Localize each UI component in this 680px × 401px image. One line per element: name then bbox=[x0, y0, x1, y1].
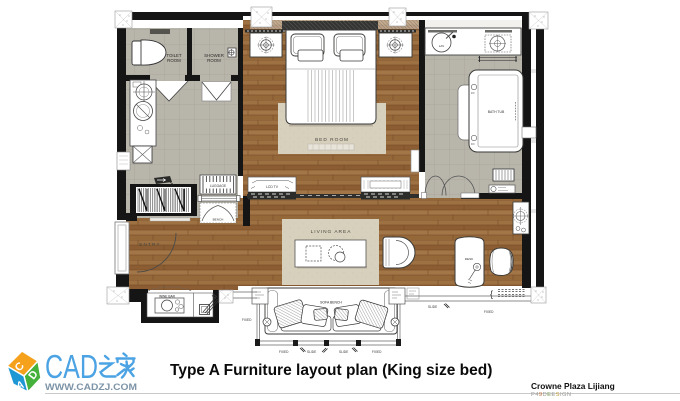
svg-text:WWW.CADZJ.COM: WWW.CADZJ.COM bbox=[45, 382, 137, 393]
svg-text:SOFA BENCH: SOFA BENCH bbox=[320, 301, 342, 305]
svg-text:FIXED: FIXED bbox=[279, 350, 289, 354]
svg-text:FD: FD bbox=[471, 142, 475, 146]
svg-text:P49DEESIGN: P49DEESIGN bbox=[531, 392, 571, 398]
svg-text:Crowne Plaza Lijiang: Crowne Plaza Lijiang bbox=[531, 381, 615, 391]
svg-text:CAD: CAD bbox=[45, 348, 98, 385]
svg-text:LCD TV: LCD TV bbox=[266, 185, 279, 189]
svg-text:SLIDE: SLIDE bbox=[339, 350, 348, 354]
svg-text:ROOM: ROOM bbox=[167, 58, 181, 63]
svg-text:SLIDE: SLIDE bbox=[428, 305, 437, 309]
svg-text:LAV: LAV bbox=[439, 44, 444, 48]
svg-text:ROOM: ROOM bbox=[207, 58, 221, 63]
svg-text:DESK: DESK bbox=[465, 257, 474, 261]
svg-text:ENTRY: ENTRY bbox=[139, 242, 161, 247]
svg-text:LUGGAGE: LUGGAGE bbox=[210, 184, 227, 188]
svg-text:{: { bbox=[490, 289, 493, 299]
svg-text:Type A Furniture layout plan (: Type A Furniture layout plan (King size … bbox=[170, 362, 492, 379]
svg-text:FIXED: FIXED bbox=[372, 350, 382, 354]
svg-text:FIXED: FIXED bbox=[484, 310, 494, 314]
svg-text:LIVING AREA: LIVING AREA bbox=[311, 229, 352, 235]
svg-text:BATH TUB: BATH TUB bbox=[488, 110, 505, 114]
svg-text:FD: FD bbox=[471, 91, 475, 95]
svg-text:SLIDE: SLIDE bbox=[307, 350, 316, 354]
svg-text:BENCH: BENCH bbox=[213, 218, 224, 222]
svg-text:FIXED: FIXED bbox=[242, 318, 252, 322]
svg-text:BED ROOM: BED ROOM bbox=[315, 137, 349, 143]
